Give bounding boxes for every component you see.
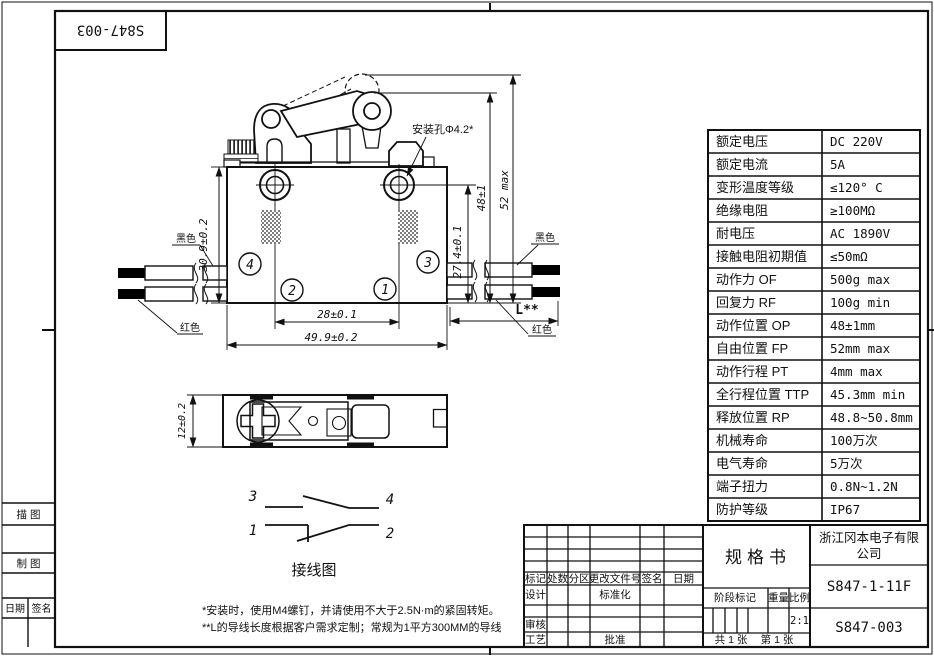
- spec-value: 45.3mm min: [830, 387, 905, 402]
- lever-assembly: [224, 91, 434, 167]
- spec-value: 100万次: [830, 433, 878, 448]
- spec-value: DC 220V: [830, 134, 883, 149]
- draft-label: 制 图: [17, 557, 41, 570]
- wiring-diagram-title: 接线图: [291, 562, 336, 579]
- rev-col-date: 日期: [673, 573, 694, 585]
- audit-label: 审核: [525, 618, 546, 631]
- dim-body-height: 30.9±0.2: [197, 218, 210, 272]
- spec-value: 48.8~50.8mm: [830, 410, 913, 425]
- terminal-2: 2: [288, 284, 296, 299]
- spec-sheet-page: S847-003 描 图 制 图 日期 签名: [0, 0, 934, 660]
- terminal-3: 3: [423, 256, 432, 271]
- spec-value: IP67: [830, 502, 860, 517]
- spec-value: 5A: [830, 157, 846, 172]
- spec-label: 释放位置 RP: [716, 410, 790, 425]
- page-borders: [2, 2, 932, 654]
- spec-label: 防护等级: [716, 502, 768, 517]
- drawing-sheet-svg: S847-003 描 图 制 图 日期 签名: [0, 0, 934, 660]
- terminal-1: 1: [381, 283, 389, 298]
- rev-col-count: 处数: [547, 572, 568, 585]
- spec-label: 动作位置 OP: [716, 318, 790, 333]
- process-label: 工艺: [525, 634, 546, 646]
- wire-red-label: 红色: [532, 323, 552, 336]
- sign-label: 签名: [32, 602, 52, 615]
- spec-label: 动作力 OF: [716, 272, 777, 287]
- dim-wire-length: L**: [515, 303, 539, 318]
- spec-label: 额定电压: [716, 134, 768, 149]
- left-strip: 描 图 制 图 日期 签名: [2, 503, 55, 647]
- spec-value: 0.8N~1.2N: [830, 479, 898, 494]
- footnotes: *安装时，使用M4螺钉，并请使用不大于2.5N·m的紧固转矩。 **L的导线长度…: [202, 603, 501, 634]
- spec-value: 52mm max: [830, 341, 891, 356]
- spec-label: 机械寿命: [716, 433, 768, 448]
- spec-value: 100g min: [830, 295, 890, 310]
- dim-free-position: 52 max: [498, 170, 511, 210]
- doc-number-box: S847-003: [55, 11, 166, 50]
- spec-label: 自由位置 FP: [716, 341, 788, 356]
- terminal-4: 4: [246, 258, 254, 273]
- stage-label: 阶段标记: [714, 591, 756, 604]
- spec-label: 耐电压: [716, 226, 755, 241]
- spec-table: 额定电压 额定电流 变形温度等级 绝缘电阻 耐电压 接触电阻初期值 动作力 OF…: [708, 130, 920, 521]
- texture-pad: [261, 210, 281, 244]
- rev-col-zone: 分区: [569, 573, 590, 585]
- rev-col-mark: 标记: [525, 573, 546, 585]
- note-1: *安装时，使用M4螺钉，并请使用不大于2.5N·m的紧固转矩。: [202, 603, 500, 617]
- spec-label: 变形温度等级: [716, 180, 794, 195]
- company-name-line1: 浙江冈本电子有限: [819, 530, 920, 545]
- side-view: 12±0.2: [177, 395, 447, 447]
- spec-label: 绝缘电阻: [716, 203, 768, 218]
- spec-label: 额定电流: [716, 157, 768, 172]
- wiring-terminal-1: 1: [249, 523, 257, 539]
- standardize-label: 标准化: [599, 588, 631, 601]
- dim-body-width: 49.9±0.2: [305, 331, 358, 344]
- scale-value: 2:1: [790, 615, 809, 627]
- trace-label: 描 图: [17, 508, 41, 521]
- sheets-total: 共 1 张: [715, 634, 748, 646]
- spec-value: 4mm max: [830, 364, 883, 379]
- rev-col-sign: 签名: [642, 572, 663, 585]
- spec-label: 接触电阻初期值: [716, 249, 807, 264]
- left-wires: [118, 263, 227, 304]
- wiring-terminal-3: 3: [248, 489, 257, 505]
- note-2: **L的导线长度根据客户需求定制；常规为1平方300MM的导线: [202, 620, 501, 634]
- spec-value: ≤120° C: [830, 180, 883, 195]
- wire-black-label: 黑色: [176, 232, 196, 245]
- title-block: 标记 处数 分区 更改文件号 签名 日期 设计 标准化 审核 工艺 批准 规格书…: [524, 525, 928, 647]
- texture-pad: [398, 210, 418, 244]
- front-view: 4 2 1 3: [118, 74, 560, 350]
- spec-value: 5万次: [830, 456, 863, 471]
- spec-label: 回复力 RF: [716, 295, 776, 310]
- wiring-terminal-2: 2: [386, 526, 394, 542]
- wire-red-label: 红色: [180, 321, 200, 334]
- wiring-diagram: 3 4 1 2 接线图: [248, 489, 394, 579]
- document-number: S847-003: [835, 620, 902, 636]
- wire-black-label: 黑色: [535, 231, 555, 244]
- scale-label: 比例: [789, 591, 810, 604]
- spec-value: ≥100MΩ: [830, 203, 876, 218]
- approve-label: 批准: [605, 633, 626, 646]
- spec-title: 规格书: [725, 548, 791, 567]
- spec-value: 48±1mm: [830, 318, 875, 333]
- rev-col-change-doc: 更改文件号: [589, 572, 642, 585]
- dim-op-position: 48±1: [475, 185, 488, 212]
- spec-value: ≤50mΩ: [830, 249, 868, 264]
- spec-label: 端子扭力: [716, 479, 768, 494]
- model-number: S847-1-11F: [827, 579, 911, 595]
- company-name-line2: 公司: [856, 547, 881, 561]
- spec-label: 全行程位置 TTP: [716, 387, 809, 402]
- sheet-number: 第 1 张: [761, 633, 794, 646]
- wiring-terminal-4: 4: [386, 492, 394, 508]
- date-label: 日期: [5, 603, 25, 615]
- dim-hole-bottom: 27.4±0.1: [451, 226, 464, 279]
- dim-side-height: 12±0.2: [177, 403, 188, 439]
- dim-hole-pitch: 28±0.1: [317, 308, 357, 321]
- spec-value: AC 1890V: [830, 226, 891, 241]
- spec-value: 500g max: [830, 272, 891, 287]
- spec-label: 动作行程 PT: [716, 364, 788, 379]
- design-label: 设计: [525, 588, 546, 601]
- weight-label: 重量: [768, 591, 789, 604]
- mount-hole-label: 安装孔Φ4.2*: [412, 122, 474, 136]
- spec-label: 电气寿命: [716, 456, 768, 471]
- centering-marks: [42, 3, 934, 655]
- doc-number-rotated: S847-003: [77, 22, 144, 38]
